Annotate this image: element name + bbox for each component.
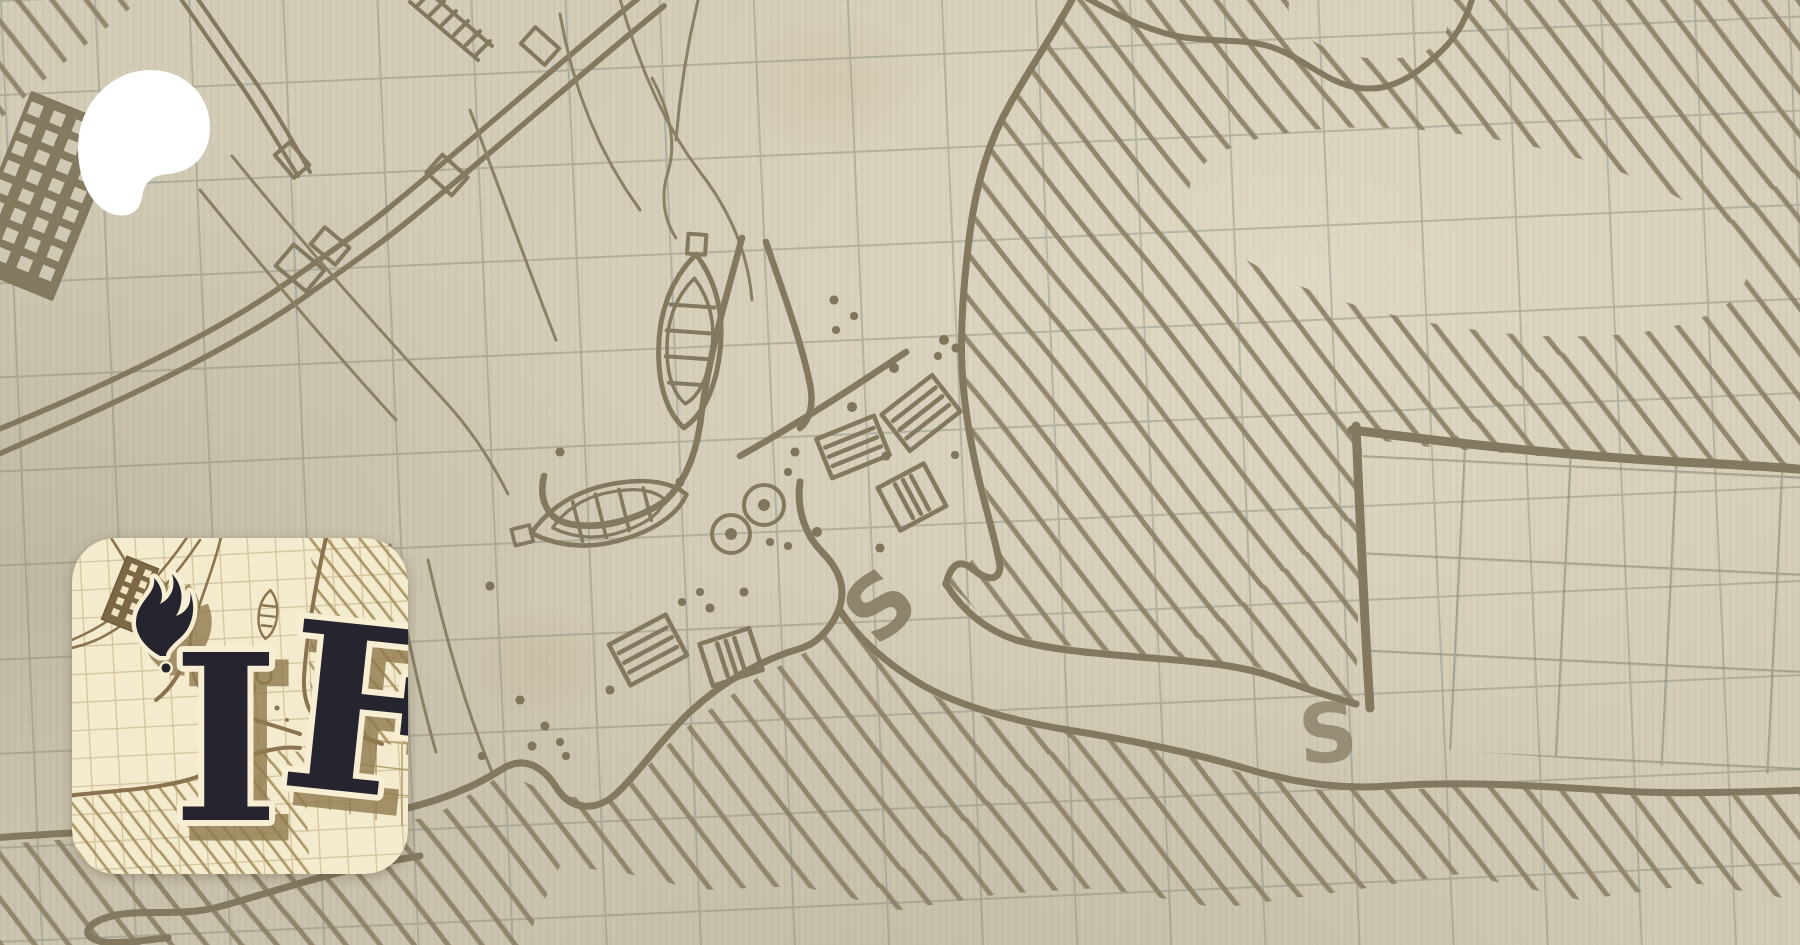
field-grid: [1340, 420, 1800, 790]
map-banner: S S: [0, 0, 1800, 945]
creator-avatar[interactable]: S IF I F I F: [72, 538, 408, 874]
avatar-initials: I F: [136, 569, 408, 874]
avatar-mini-map: S IF I F I F: [72, 538, 408, 874]
svg-text:I: I: [172, 604, 280, 874]
svg-text:F: F: [270, 569, 408, 855]
patreon-logo-icon: [0, 0, 300, 260]
map-label-s-field: S: [1295, 684, 1361, 783]
